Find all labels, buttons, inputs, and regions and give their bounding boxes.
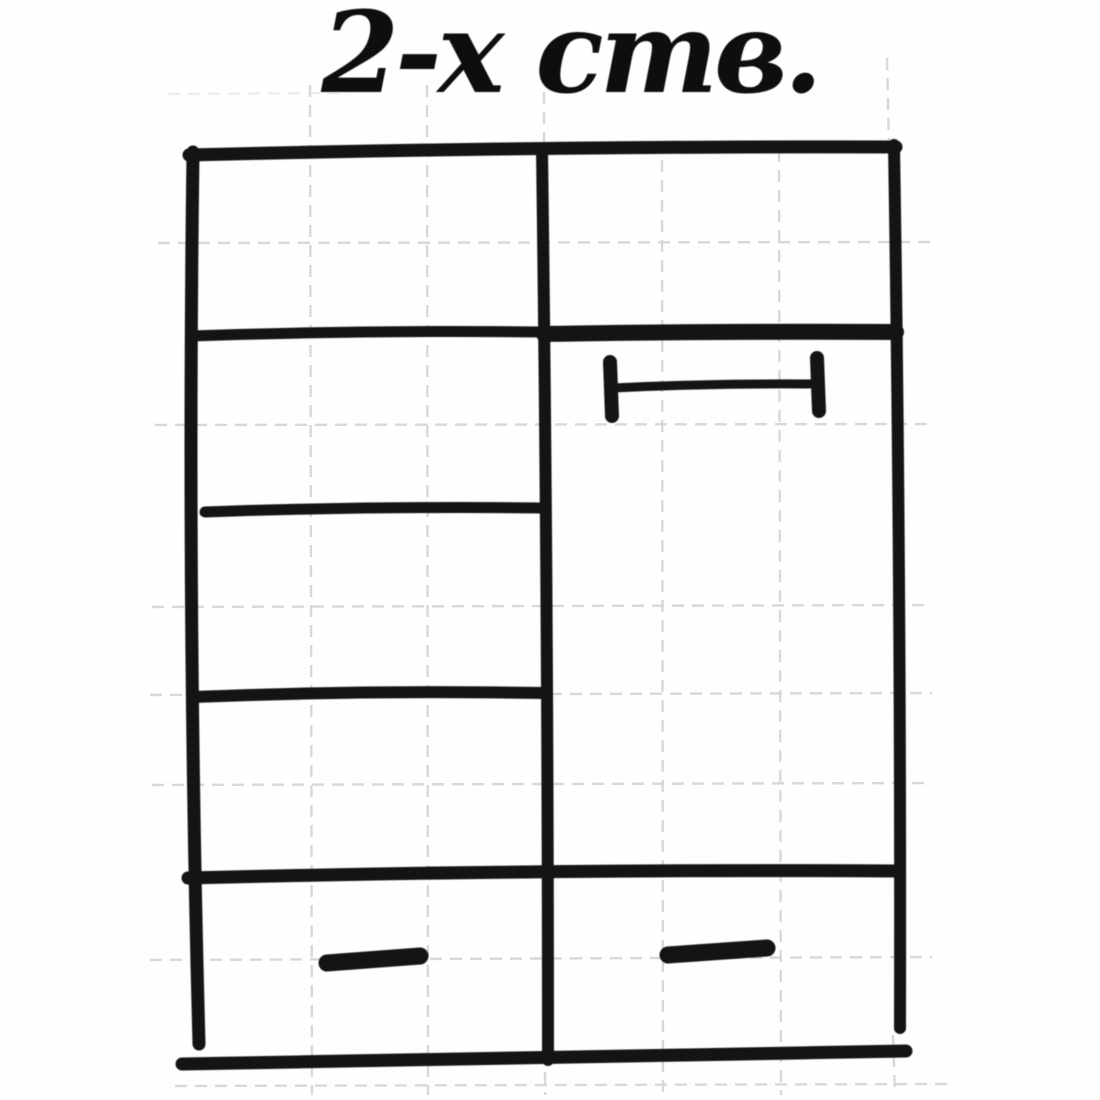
right-drawer-handle <box>668 948 767 955</box>
door-handle-left-cap <box>610 362 612 416</box>
grid-line-vertical <box>779 150 781 1095</box>
drawer-rail-line <box>188 871 897 878</box>
wardrobe-drawing <box>0 0 1100 1100</box>
base-line <box>182 1051 906 1064</box>
shelf-line-2 <box>205 508 541 513</box>
grid-line-horizontal <box>150 957 932 960</box>
left-side-line <box>191 152 199 1044</box>
left-drawer-handle <box>327 956 420 963</box>
sketch-canvas: 2-х ств. <box>0 0 1100 1100</box>
door-handle-bar <box>613 384 817 388</box>
center-divider-line <box>542 150 548 1060</box>
grid-line-vertical <box>887 58 889 148</box>
grid-line-vertical <box>893 1035 895 1095</box>
shelf-line-3 <box>193 692 543 697</box>
grid-line-vertical <box>427 85 428 1095</box>
grid-line-horizontal <box>175 1084 950 1086</box>
shelf-line-1 <box>191 332 541 337</box>
grid-line-horizontal <box>168 93 350 94</box>
door-handle-right-cap <box>817 358 819 411</box>
right-side-line <box>894 145 900 1028</box>
grid-line-vertical <box>310 85 312 1095</box>
door-top-rail-line <box>544 332 896 334</box>
